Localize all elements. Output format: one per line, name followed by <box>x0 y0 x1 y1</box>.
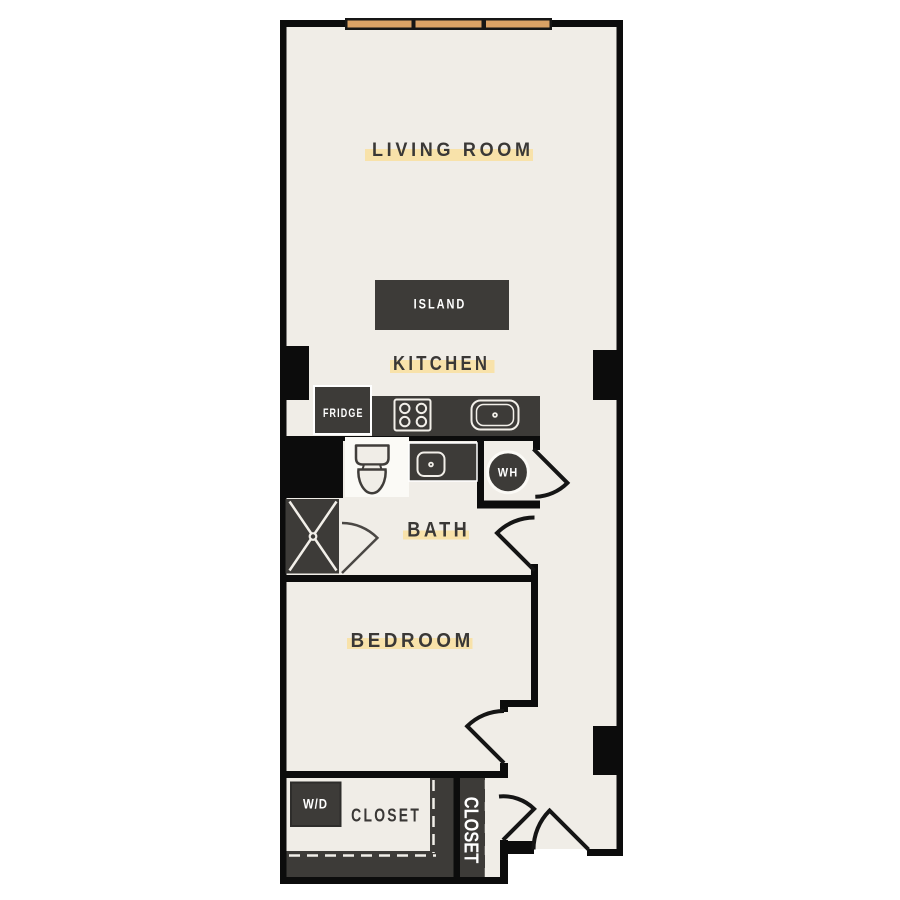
svg-text:FRIDGE: FRIDGE <box>323 408 364 420</box>
svg-text:CLOSET: CLOSET <box>351 806 421 826</box>
svg-text:KITCHEN: KITCHEN <box>393 351 490 374</box>
svg-text:LIVING ROOM: LIVING ROOM <box>372 138 534 160</box>
svg-text:WH: WH <box>498 467 519 480</box>
svg-text:ISLAND: ISLAND <box>414 296 467 312</box>
svg-text:BATH: BATH <box>407 518 470 542</box>
svg-text:W/D: W/D <box>303 797 328 812</box>
svg-text:CLOSET: CLOSET <box>460 797 483 864</box>
svg-text:BEDROOM: BEDROOM <box>351 629 474 652</box>
